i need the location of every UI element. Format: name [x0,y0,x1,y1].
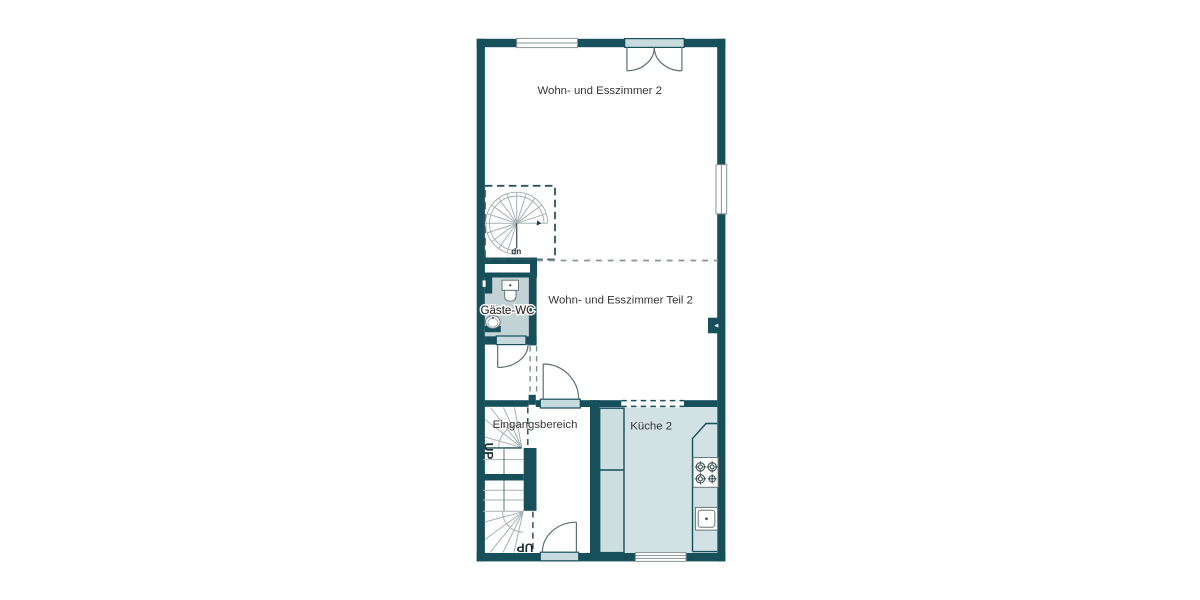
svg-text:Eingangsbereich: Eingangsbereich [493,419,578,431]
svg-text:Wohn- und Esszimmer Teil 2: Wohn- und Esszimmer Teil 2 [548,294,693,306]
svg-text:dn: dn [511,247,521,256]
svg-text:UP: UP [482,443,496,460]
svg-text:Gäste-WC: Gäste-WC [480,304,534,317]
svg-text:Wohn- und Esszimmer 2: Wohn- und Esszimmer 2 [537,85,662,97]
svg-text:Küche 2: Küche 2 [630,421,672,433]
svg-text:UP: UP [517,540,534,554]
